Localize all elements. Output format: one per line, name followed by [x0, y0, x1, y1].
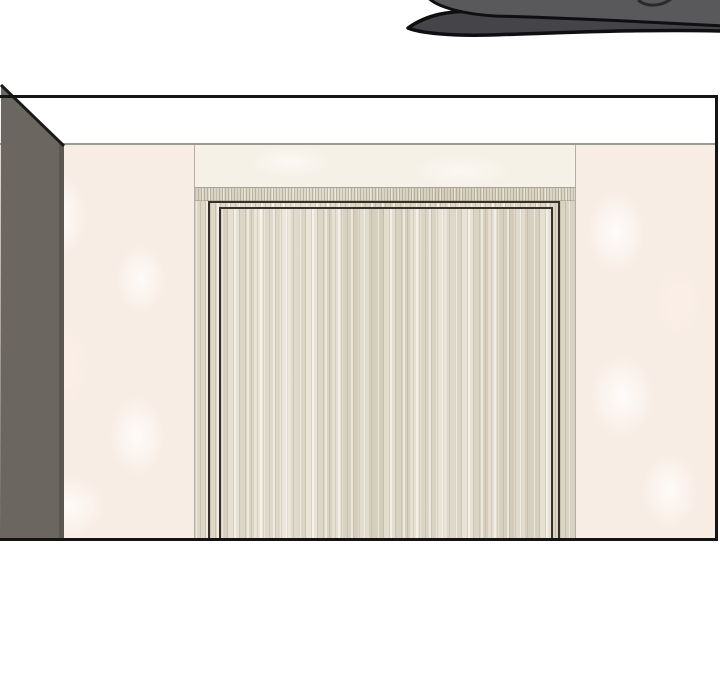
door-frame [194, 187, 576, 538]
left-side-wall-dark [0, 83, 66, 538]
right-wall [574, 145, 715, 538]
main-panel [0, 98, 718, 541]
previous-panel-art [400, 0, 720, 42]
comic-page [0, 0, 720, 700]
door-lintel [195, 188, 575, 201]
gray-wall-face [0, 85, 64, 538]
door-slab [219, 207, 553, 538]
gray-wall-edge-shade [59, 143, 64, 538]
ceiling [0, 98, 715, 145]
wall-above-door [194, 145, 576, 188]
panel-top-border [0, 95, 718, 98]
